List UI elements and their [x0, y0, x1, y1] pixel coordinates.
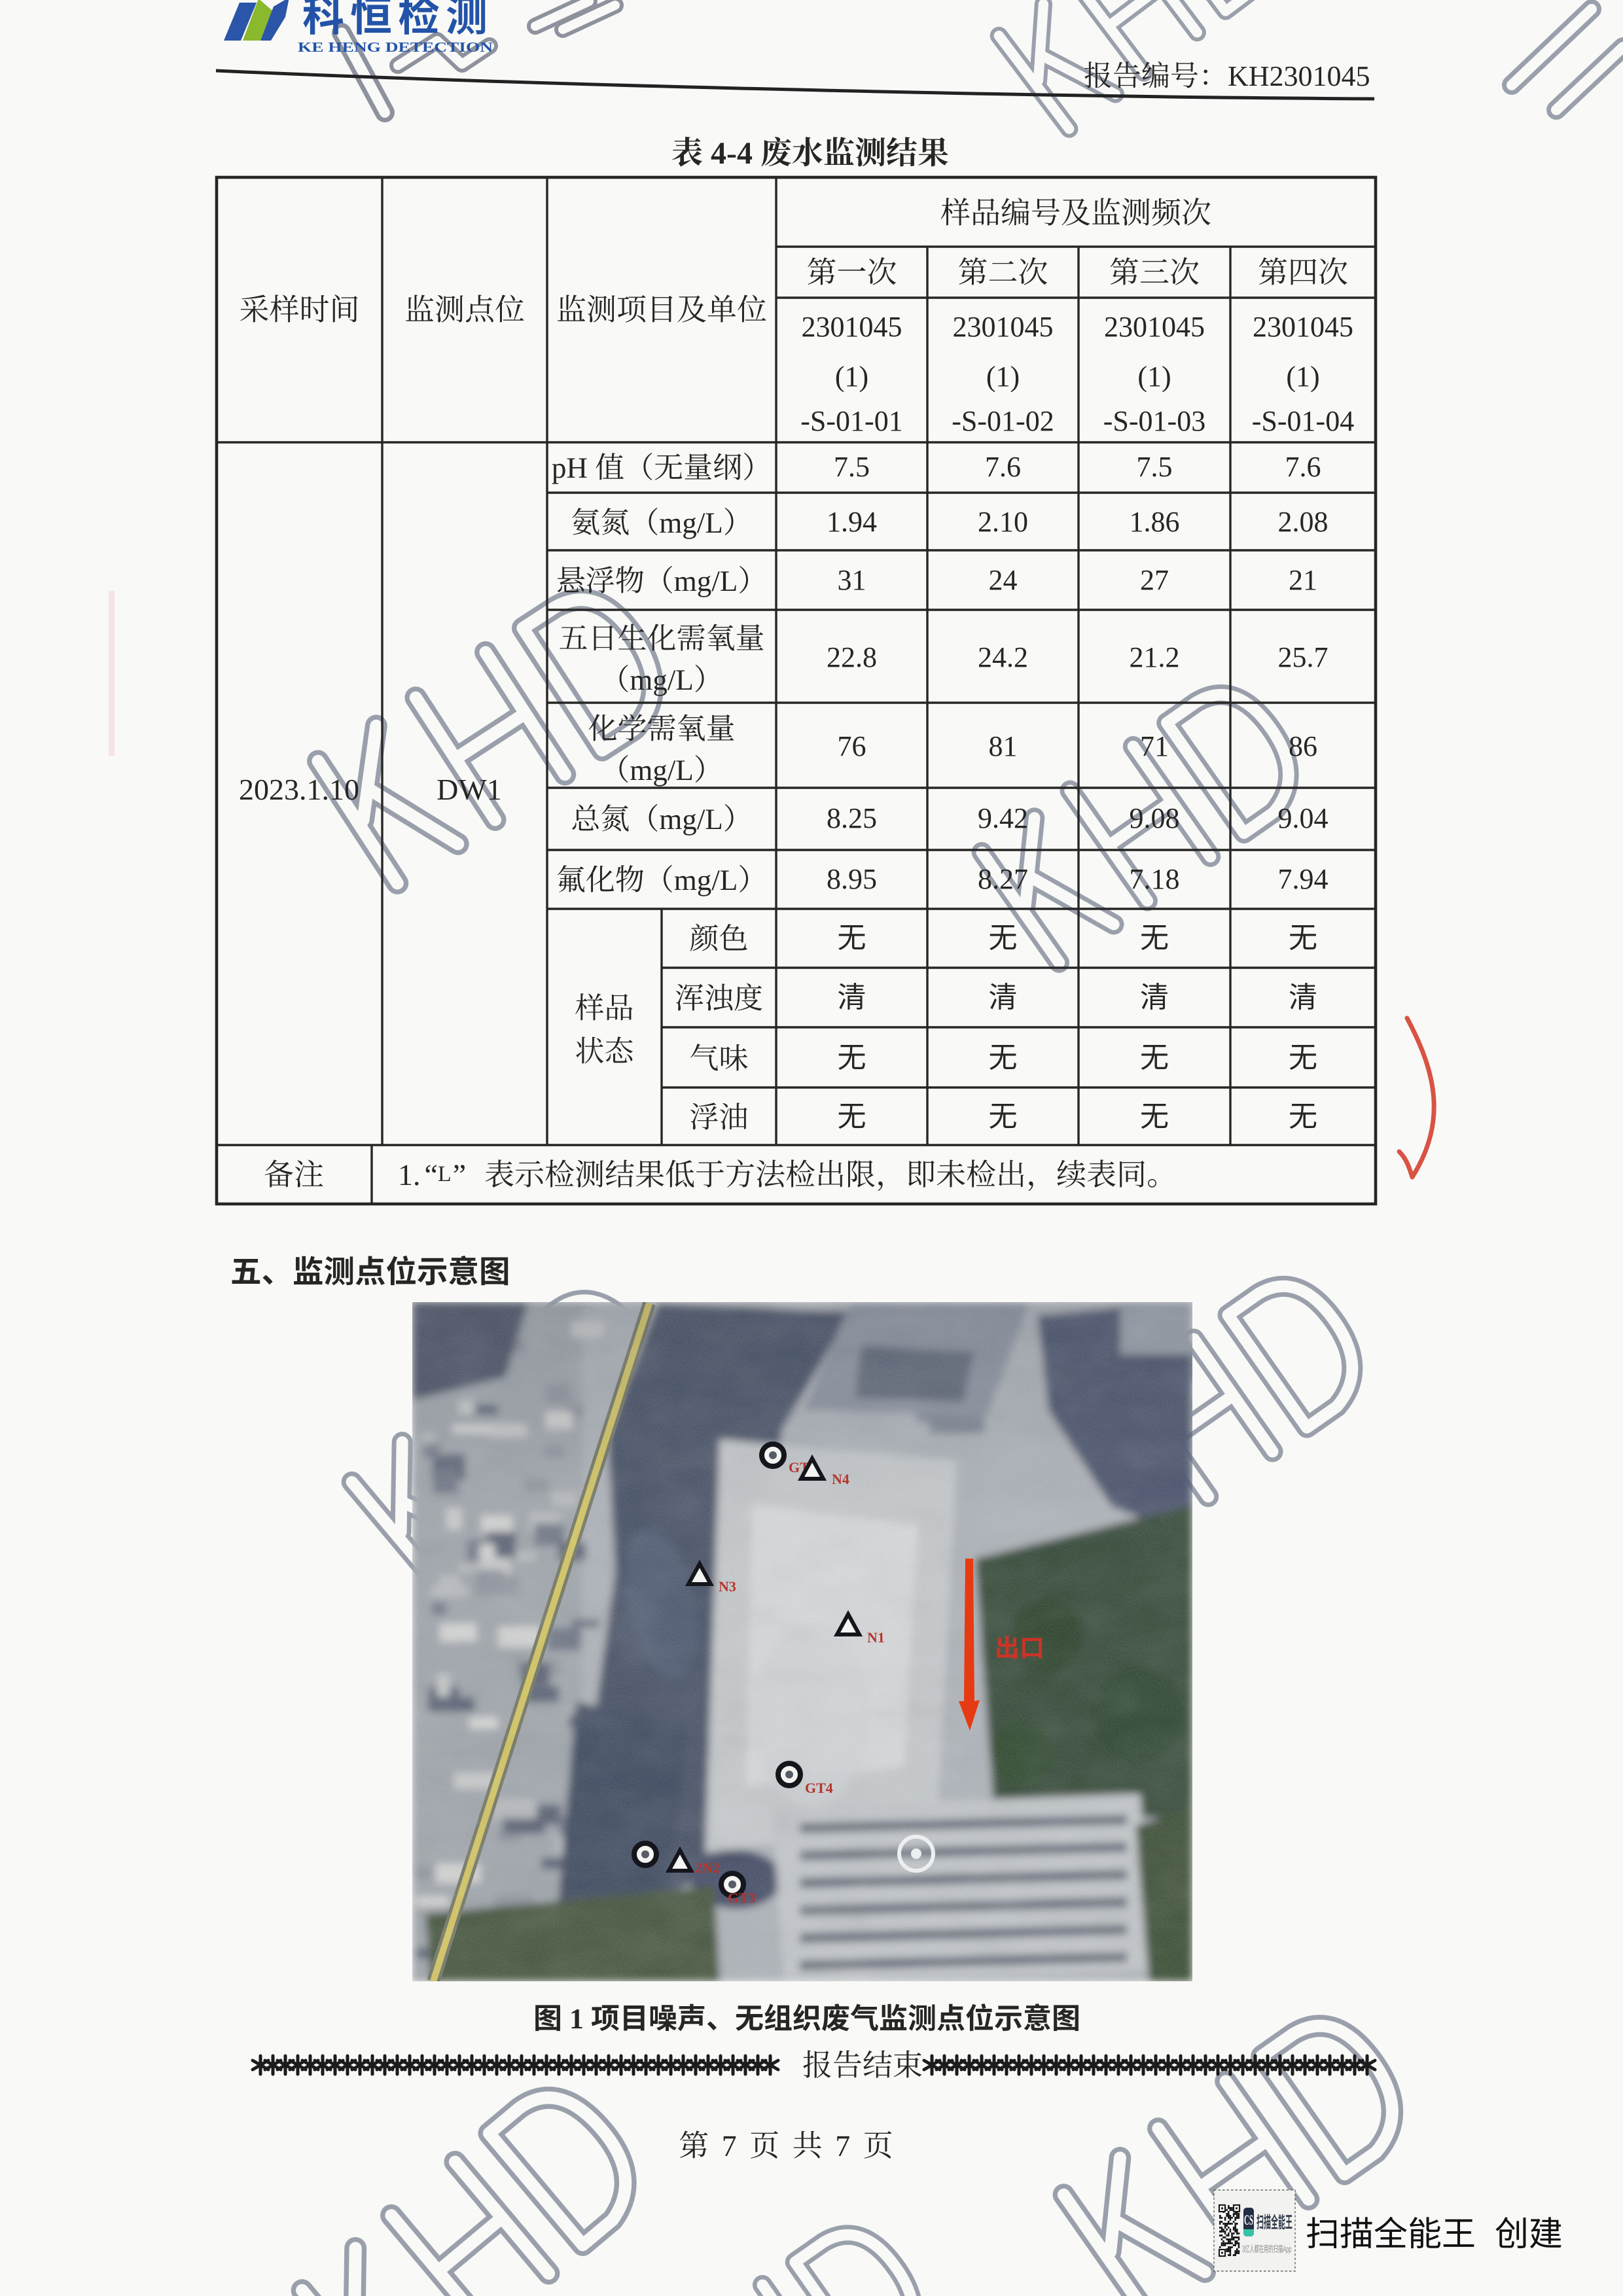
- svg-text:7.6: 7.6: [985, 451, 1021, 483]
- svg-text:9.04: 9.04: [1278, 802, 1329, 834]
- svg-text:无: 无: [989, 1101, 1018, 1133]
- svg-text:2301045: 2301045: [953, 311, 1054, 343]
- svg-text:22.8: 22.8: [827, 641, 877, 673]
- svg-text:清: 清: [1140, 981, 1169, 1014]
- svg-text:无: 无: [1140, 922, 1169, 954]
- svg-text:9.08: 9.08: [1130, 802, 1180, 834]
- svg-text:21.2: 21.2: [1130, 641, 1180, 673]
- svg-text:7.94: 7.94: [1278, 863, 1329, 895]
- svg-text:无: 无: [1140, 1101, 1169, 1133]
- svg-text:-S-01-03: -S-01-03: [1103, 405, 1205, 437]
- svg-text:7.5: 7.5: [1137, 451, 1173, 483]
- svg-text:清: 清: [1289, 981, 1317, 1014]
- svg-text:7.18: 7.18: [1130, 863, 1180, 895]
- svg-text:2.08: 2.08: [1278, 506, 1329, 538]
- svg-text:无: 无: [838, 1101, 866, 1133]
- svg-text:25.7: 25.7: [1278, 641, 1329, 673]
- svg-text:8.95: 8.95: [827, 863, 877, 895]
- svg-text:-S-01-02: -S-01-02: [952, 405, 1054, 437]
- svg-text:7.6: 7.6: [1285, 451, 1321, 483]
- svg-text:8.27: 8.27: [978, 863, 1028, 895]
- svg-text:无: 无: [838, 1042, 866, 1074]
- svg-text:24: 24: [989, 564, 1018, 596]
- svg-text:7.5: 7.5: [834, 451, 870, 483]
- svg-text:9.42: 9.42: [978, 802, 1028, 834]
- svg-text:无: 无: [1289, 1101, 1317, 1133]
- svg-text:无: 无: [838, 922, 866, 954]
- svg-text:2301045: 2301045: [1253, 311, 1353, 343]
- svg-text:无: 无: [989, 922, 1018, 954]
- svg-text:2N2: 2N2: [695, 1860, 720, 1876]
- svg-text:1.86: 1.86: [1130, 506, 1180, 538]
- svg-text:清: 清: [989, 981, 1018, 1014]
- svg-text:无: 无: [989, 1042, 1018, 1074]
- svg-text:71: 71: [1140, 730, 1169, 762]
- svg-text:27: 27: [1140, 564, 1169, 596]
- svg-text:-S-01-01: -S-01-01: [800, 405, 902, 437]
- svg-text:(1): (1): [986, 361, 1020, 393]
- svg-text:76: 76: [838, 730, 866, 762]
- svg-text:CS: CS: [1244, 2212, 1253, 2228]
- svg-text:无: 无: [1289, 922, 1317, 954]
- svg-text:(1): (1): [835, 361, 868, 393]
- svg-text:DW1: DW1: [437, 773, 502, 806]
- svg-text:24.2: 24.2: [978, 641, 1028, 673]
- svg-text:N3: N3: [719, 1578, 736, 1595]
- svg-text:2.10: 2.10: [978, 506, 1028, 538]
- svg-text:1.94: 1.94: [827, 506, 877, 538]
- svg-text:81: 81: [989, 730, 1018, 762]
- svg-text:GT4: GT4: [805, 1780, 833, 1796]
- svg-text:2301045: 2301045: [802, 311, 902, 343]
- svg-text:2301045: 2301045: [1104, 311, 1205, 343]
- svg-text:无: 无: [1289, 1042, 1317, 1074]
- svg-text:31: 31: [838, 564, 866, 596]
- svg-text:(1): (1): [1286, 361, 1319, 393]
- svg-text:KE HENG DETECTION: KE HENG DETECTION: [298, 39, 493, 55]
- svg-text:GT3: GT3: [728, 1890, 756, 1906]
- svg-text:清: 清: [838, 981, 866, 1014]
- svg-text:N4: N4: [832, 1471, 849, 1487]
- svg-text:N1: N1: [867, 1629, 885, 1646]
- svg-text:(1): (1): [1137, 361, 1171, 393]
- svg-text:-S-01-04: -S-01-04: [1252, 405, 1354, 437]
- svg-text:8.25: 8.25: [827, 802, 877, 834]
- svg-text:无: 无: [1140, 1042, 1169, 1074]
- svg-text:2023.1.10: 2023.1.10: [239, 773, 359, 806]
- svg-text:86: 86: [1289, 730, 1317, 762]
- svg-text:21: 21: [1289, 564, 1317, 596]
